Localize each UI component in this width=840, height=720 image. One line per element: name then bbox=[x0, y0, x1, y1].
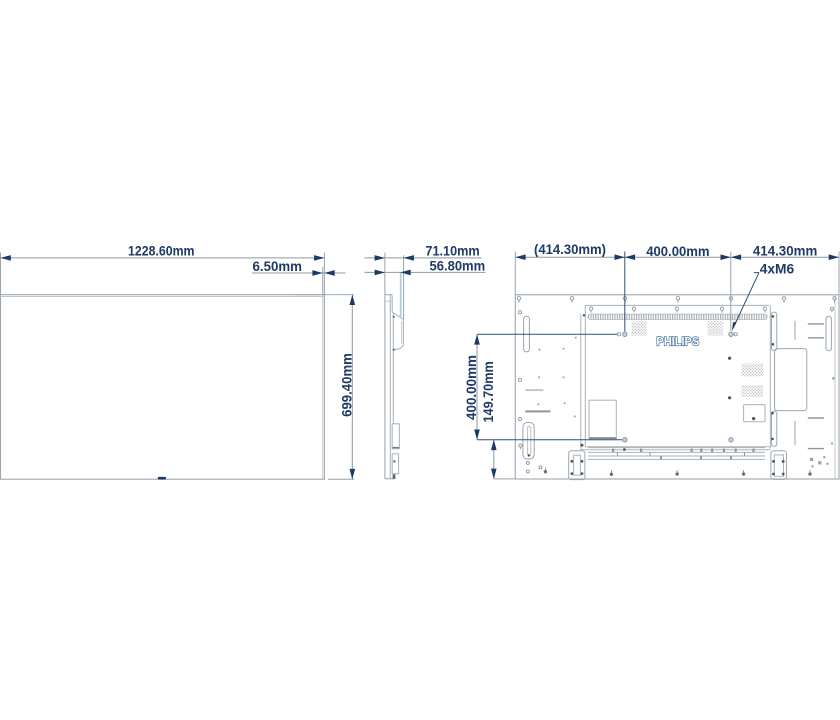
svg-text:414.30mm: 414.30mm bbox=[753, 242, 817, 258]
svg-text:400.00mm: 400.00mm bbox=[646, 243, 709, 259]
svg-text:699.40mm: 699.40mm bbox=[339, 353, 355, 417]
svg-text:71.10mm: 71.10mm bbox=[425, 243, 479, 259]
svg-text:1228.60mm: 1228.60mm bbox=[128, 243, 195, 259]
svg-text:(414.30mm): (414.30mm) bbox=[534, 241, 606, 257]
svg-text:56.80mm: 56.80mm bbox=[430, 258, 486, 274]
svg-text:149.70mm: 149.70mm bbox=[480, 361, 496, 422]
svg-text:400.00mm: 400.00mm bbox=[463, 355, 479, 420]
svg-text:4xM6: 4xM6 bbox=[760, 261, 795, 277]
svg-text:PHILIPS: PHILIPS bbox=[656, 334, 699, 348]
svg-text:6.50mm: 6.50mm bbox=[253, 258, 303, 274]
